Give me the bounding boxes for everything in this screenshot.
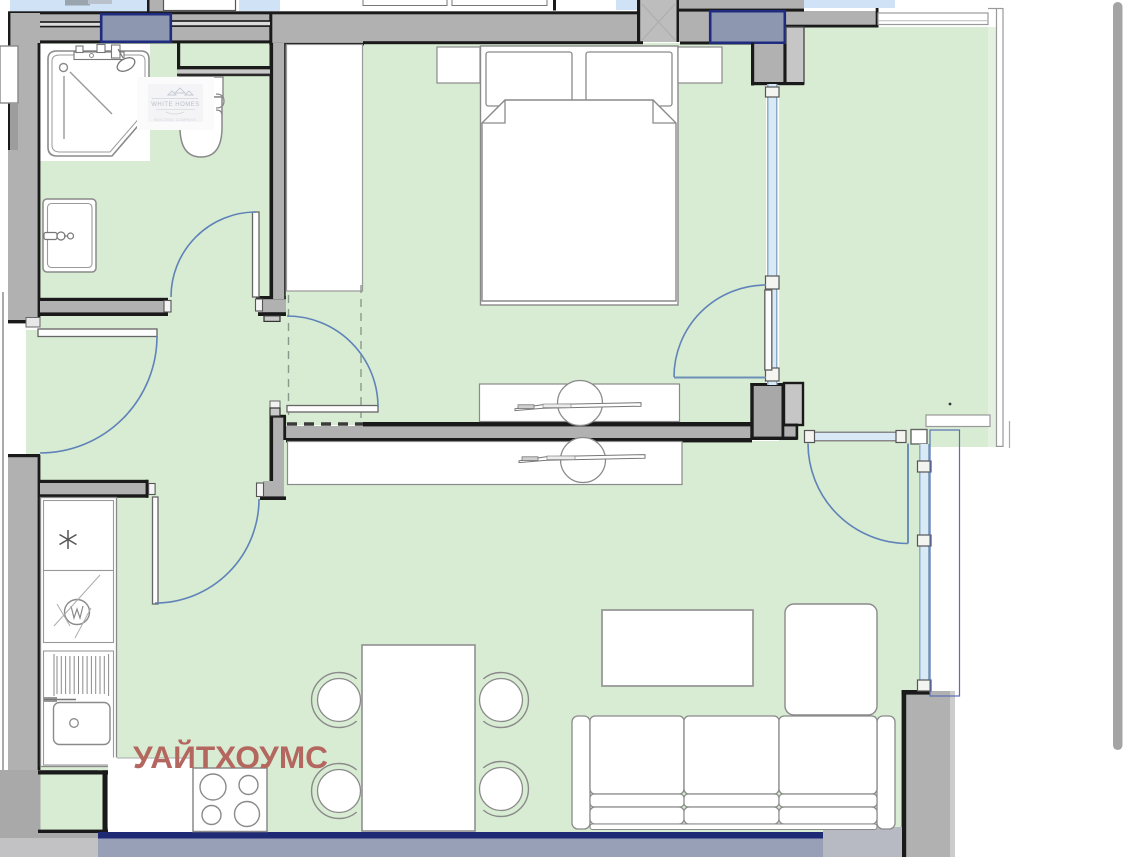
svg-text:УАЙТХОУМС: УАЙТХОУМС: [133, 739, 328, 775]
svg-text:BUILDING COMPANY: BUILDING COMPANY: [154, 118, 196, 122]
svg-text:WHITE HOMES: WHITE HOMES: [151, 102, 200, 108]
